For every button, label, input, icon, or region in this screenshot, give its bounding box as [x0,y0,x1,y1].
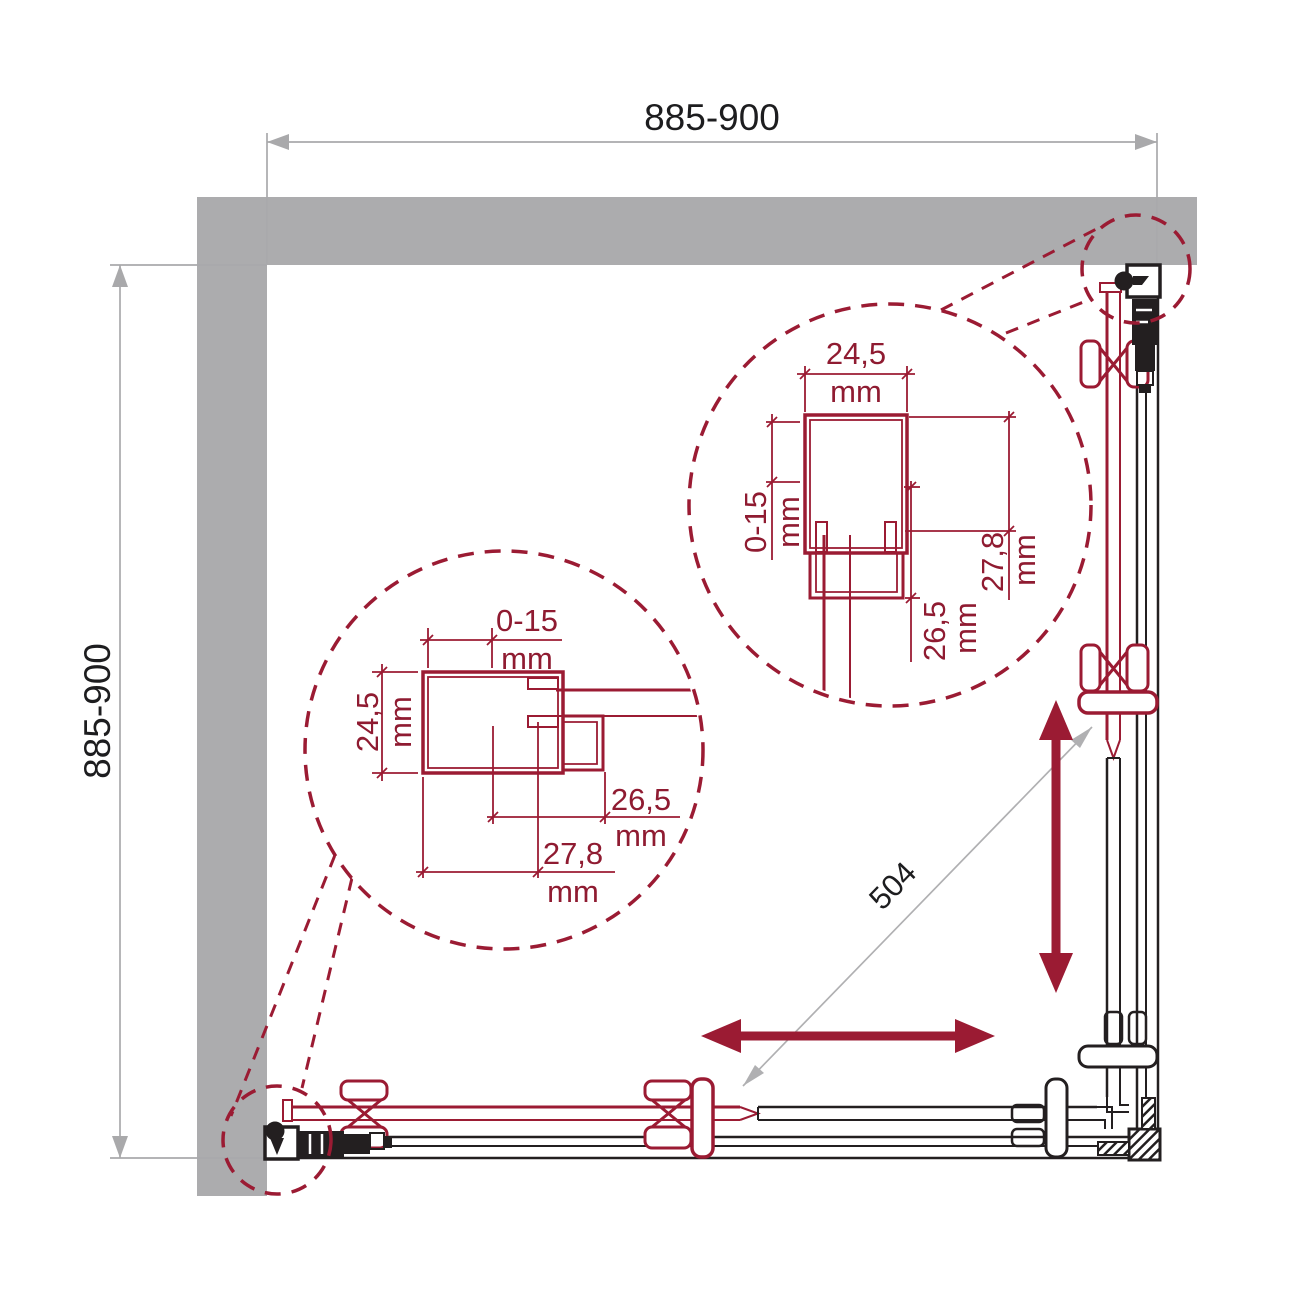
dim-value: 0-15 [738,491,773,553]
dim-arrow-top [112,265,128,287]
dim-value: 26,5 [611,782,671,817]
bottom-door-handle-profile [692,1079,713,1157]
left-height-label: 885-900 [77,643,118,779]
dim-unit: mm [830,374,882,409]
left-wall [197,197,267,1196]
dim-unit: mm [547,874,599,909]
diagonal-opening-label: 504 [862,855,923,917]
right-panel-assembly [1079,265,1160,1159]
detail-view-bottom-left: 0-15 mm 24,5 mm 26,5 mm [305,551,706,949]
bottom-fixed-bracket [1012,1079,1067,1157]
bracket-screw-icon [266,1122,285,1141]
dim-arrow-bottom [112,1136,128,1158]
horizontal-slide-arrow-icon [701,1019,995,1053]
dim-unit: mm [771,496,806,548]
right-door-edge-hardware [1079,645,1157,713]
dim-arrow-right [1135,134,1157,150]
detail-view-top-right: 24,5 mm 0-15 mm 27,8 mm [689,304,1091,706]
top-width-label: 885-900 [644,97,780,138]
dim-value: 0-15 [496,603,558,638]
right-fixed-bracket [1079,1012,1157,1067]
dim-arrow-left [267,134,289,150]
dim-unit: mm [383,696,418,748]
dim-value: 26,5 [917,601,952,661]
bottom-door-edge-hardware [645,1079,713,1157]
vertical-slide-arrow-icon [1039,700,1073,993]
technical-drawing-canvas: 885-900 885-900 504 [0,0,1300,1300]
dim-unit: mm [948,602,983,654]
dim-unit: mm [615,818,667,853]
bracket-screw-icon [1115,272,1134,291]
dim-value: 27,8 [543,836,603,871]
dim-value: 24,5 [826,336,886,371]
right-door-handle-profile [1079,692,1157,713]
dim-unit: mm [1007,534,1042,586]
bottom-panel-assembly [265,1079,1160,1160]
shower-enclosure-dimension-diagram: 885-900 885-900 504 [0,0,1300,1300]
dim-value: 27,8 [975,532,1010,592]
dim-value: 24,5 [350,692,385,752]
dim-unit: mm [501,641,553,676]
